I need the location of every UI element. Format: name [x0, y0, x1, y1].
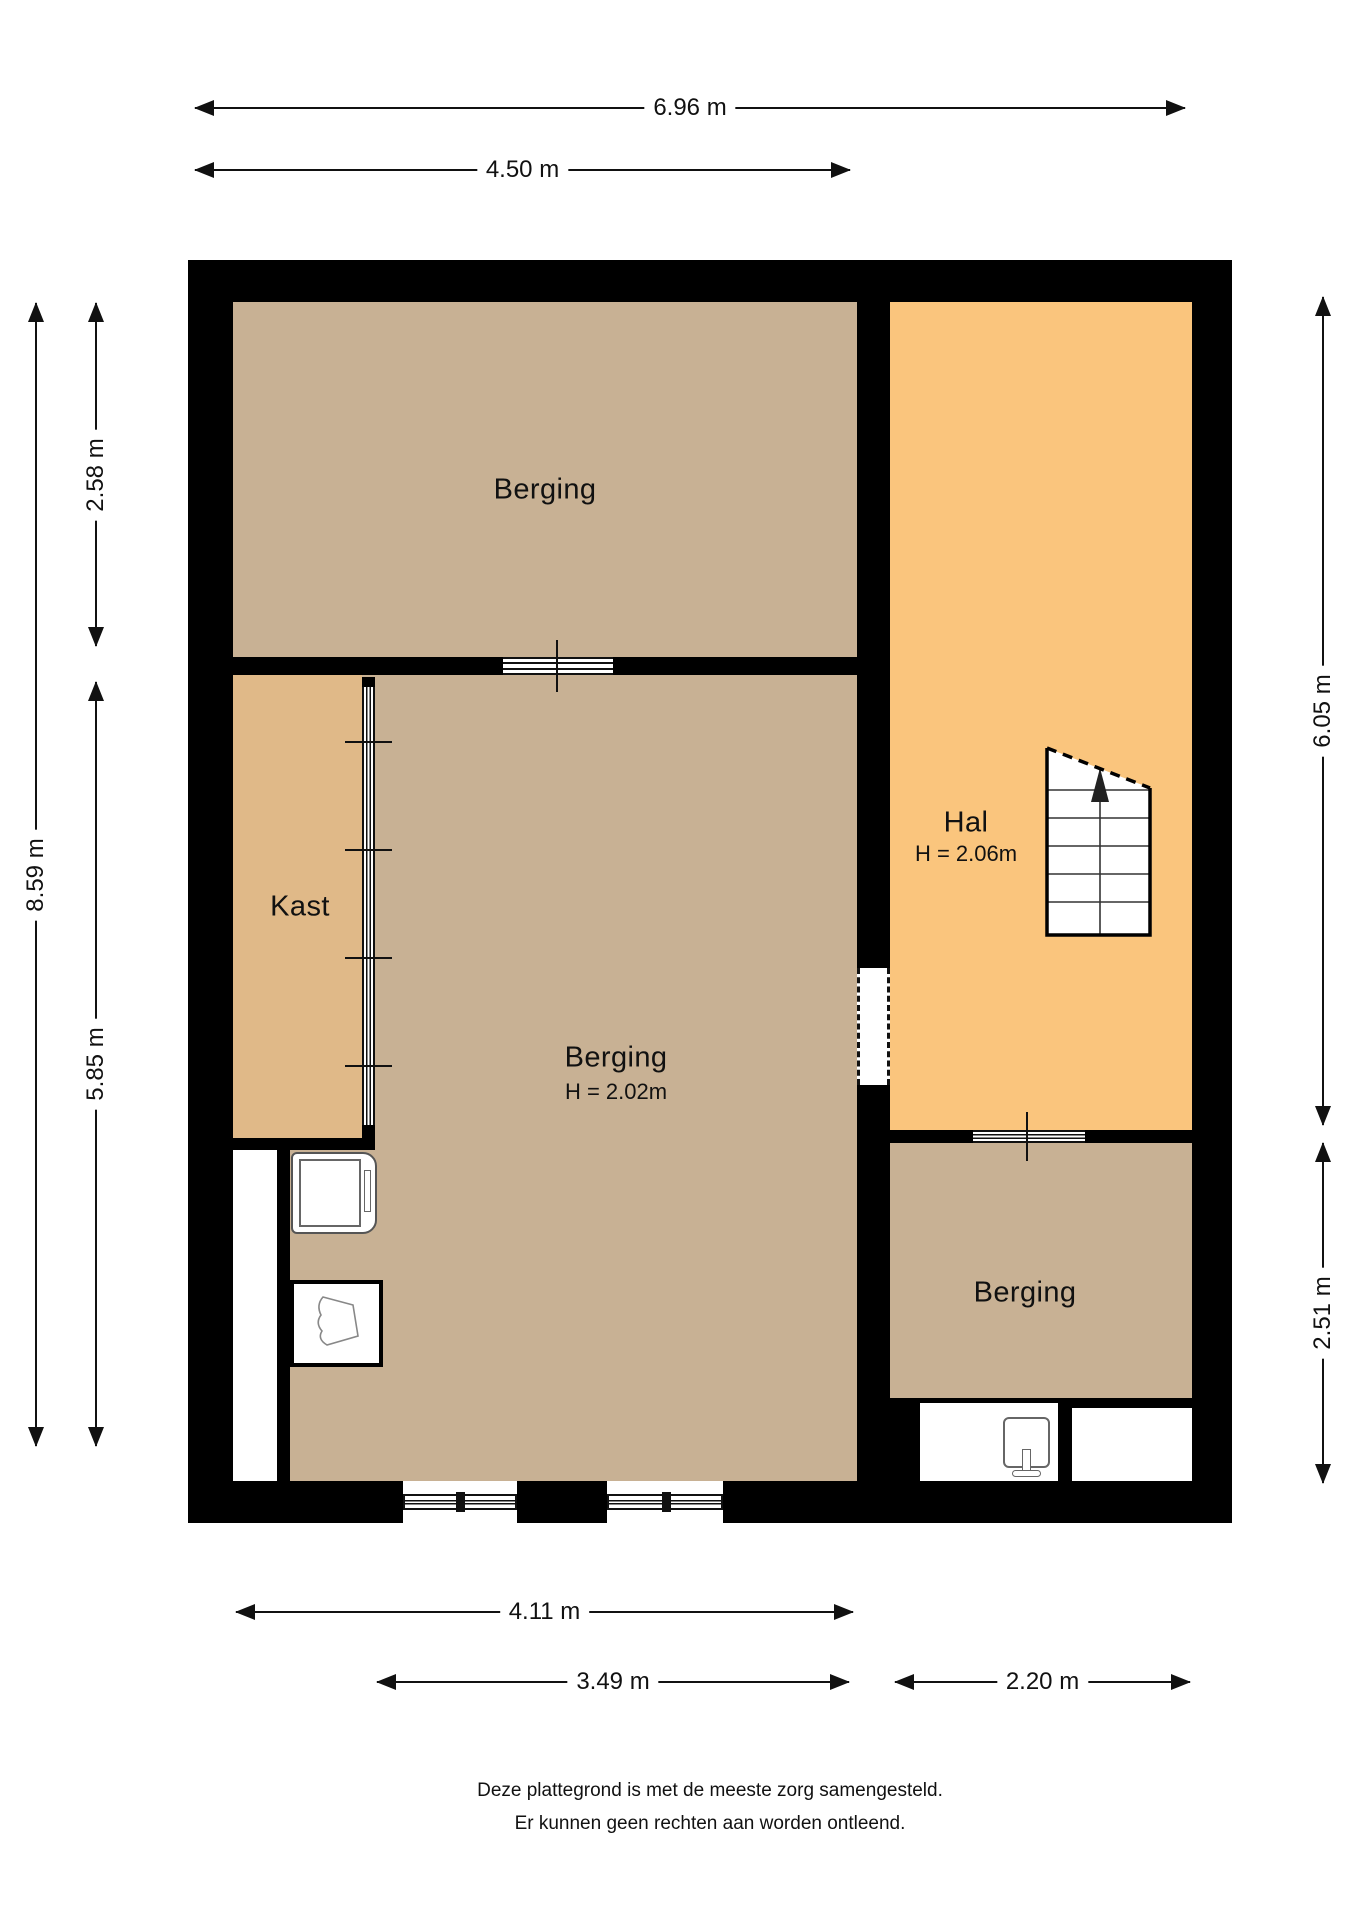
room-label-berging-bottom: Berging [974, 1277, 1077, 1310]
dimension-label: 6.96 m [644, 94, 735, 122]
arrow-down-icon [88, 1427, 104, 1447]
arrow-right-icon [1166, 100, 1186, 116]
dimension-bottom-inner: 4.11 m [236, 1611, 853, 1613]
floor-hal [890, 302, 1192, 1130]
kast-partition-tick-1 [345, 741, 392, 743]
room-label-berging-top: Berging [494, 474, 597, 507]
dimension-label: 3.49 m [567, 1668, 658, 1696]
dimension-left-total: 8.59 m [35, 303, 37, 1446]
kast-partition-tick-2 [345, 849, 392, 851]
dimension-left-bottom: 5.85 m [95, 682, 97, 1446]
arrow-down-icon [88, 627, 104, 647]
dimension-label: 6.05 m [1309, 665, 1337, 756]
arrow-left-icon [376, 1674, 396, 1690]
room-height-berging-middle: H = 2.02m [565, 1079, 667, 1105]
room-label-kast: Kast [270, 891, 330, 924]
window-bottom-2 [607, 1481, 723, 1523]
arrow-down-icon [28, 1427, 44, 1447]
room-label-berging-middle: Berging [565, 1042, 668, 1075]
dimension-right-top: 6.05 m [1322, 297, 1324, 1125]
dimension-label: 4.11 m [500, 1598, 590, 1626]
window-hal-berging [973, 1130, 1085, 1143]
wall-kast-partition-stub-top [362, 677, 375, 687]
kast-partition-tick-3 [345, 957, 392, 959]
wall-outer-top [188, 260, 1232, 302]
kast-partition-glazing [362, 687, 375, 1125]
window-hal-berging-tick [1026, 1112, 1028, 1161]
dimension-right-bottom: 2.51 m [1322, 1143, 1324, 1483]
arrow-right-icon [1171, 1674, 1191, 1690]
window-bottom-2-divider [662, 1492, 671, 1512]
arrow-left-icon [194, 100, 214, 116]
window-bottom-1-divider [456, 1492, 465, 1512]
wall-hal-left-lower [857, 1085, 890, 1481]
door-opening-hal [857, 968, 890, 1085]
wall-outer-right [1192, 302, 1232, 1523]
dimension-bottom-left: 3.49 m [377, 1681, 849, 1683]
arrow-up-icon [1315, 1142, 1331, 1162]
arrow-down-icon [1315, 1106, 1331, 1126]
room-height-hal: H = 2.06m [915, 841, 1017, 867]
arrow-right-icon [834, 1604, 854, 1620]
dimension-top-left-section: 4.50 m [195, 169, 850, 171]
wall-niche-right [277, 1150, 290, 1481]
arrow-up-icon [1315, 296, 1331, 316]
dimension-label: 2.58 m [82, 429, 110, 520]
window-inner-top [503, 657, 613, 675]
stairs [1040, 740, 1160, 945]
arrow-up-icon [88, 681, 104, 701]
arrow-up-icon [28, 302, 44, 322]
disclaimer: Deze plattegrond is met de meeste zorg s… [188, 1774, 1232, 1840]
arrow-down-icon [1315, 1464, 1331, 1484]
wall-outer-left [188, 302, 233, 1523]
disclaimer-line-2: Er kunnen geen rechten aan worden ontlee… [188, 1807, 1232, 1840]
window-inner-top-tick [556, 640, 558, 692]
appliance-washer-icon [291, 1152, 377, 1234]
disclaimer-line-1: Deze plattegrond is met de meeste zorg s… [188, 1774, 1232, 1807]
wall-hal-left-upper [857, 302, 890, 968]
wall-kast-bottom [233, 1138, 375, 1150]
room-label-hal: Hal [944, 807, 989, 840]
floor-plan: Berging Kast Berging H = 2.02m Hal H = 2… [0, 0, 1358, 1920]
window-bottom-1 [403, 1481, 517, 1523]
niche-left [233, 1150, 277, 1481]
floor-berging-bottom [890, 1143, 1192, 1398]
kast-partition-tick-4 [345, 1065, 392, 1067]
arrow-right-icon [830, 1674, 850, 1690]
dimension-label: 5.85 m [82, 1018, 110, 1109]
dimension-label: 4.50 m [477, 156, 568, 184]
arrow-left-icon [894, 1674, 914, 1690]
arrow-right-icon [831, 162, 851, 178]
dimension-label: 2.20 m [997, 1668, 1088, 1696]
arrow-up-icon [88, 302, 104, 322]
arrow-left-icon [235, 1604, 255, 1620]
dimension-top-total: 6.96 m [195, 107, 1185, 109]
arrow-left-icon [194, 162, 214, 178]
laundry-tub-icon [290, 1280, 383, 1367]
dimension-label: 2.51 m [1309, 1267, 1337, 1358]
sink-faucet-base-icon [1012, 1470, 1041, 1477]
dimension-left-top: 2.58 m [95, 303, 97, 646]
recess-right [1072, 1408, 1192, 1481]
dimension-bottom-right: 2.20 m [895, 1681, 1190, 1683]
dimension-label: 8.59 m [22, 829, 50, 920]
